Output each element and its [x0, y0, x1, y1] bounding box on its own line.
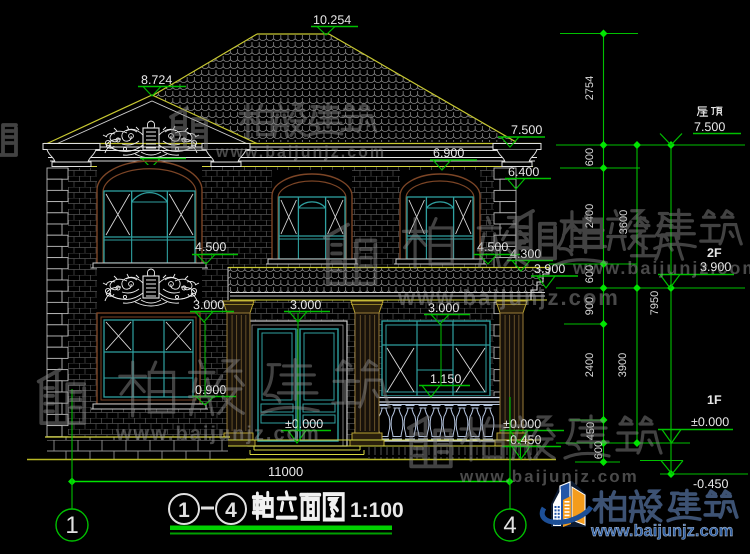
svg-text:7.500: 7.500	[511, 123, 542, 137]
svg-text:±0.000: ±0.000	[691, 415, 729, 429]
svg-text:2400: 2400	[584, 353, 596, 377]
svg-text:600: 600	[584, 148, 596, 166]
svg-text:8.724: 8.724	[141, 73, 172, 87]
svg-text:1:100: 1:100	[350, 499, 404, 522]
svg-text:10.254: 10.254	[313, 13, 351, 27]
svg-text:www.baijunjz.com: www.baijunjz.com	[115, 423, 321, 445]
svg-text:3900: 3900	[617, 353, 629, 377]
svg-text:1.150: 1.150	[430, 372, 461, 386]
svg-text:www.baijunjz.com: www.baijunjz.com	[572, 258, 750, 278]
svg-text:11000: 11000	[268, 464, 303, 479]
svg-text:3.000: 3.000	[290, 298, 321, 312]
svg-text:3.000: 3.000	[193, 298, 224, 312]
svg-text:1F: 1F	[707, 393, 722, 407]
svg-text:-0.450: -0.450	[693, 477, 728, 491]
svg-text:4: 4	[503, 512, 516, 539]
svg-text:www.baijunjz.com: www.baijunjz.com	[397, 285, 620, 310]
svg-text:7.500: 7.500	[694, 120, 725, 134]
svg-text:6.900: 6.900	[433, 146, 464, 160]
svg-text:3600: 3600	[618, 210, 630, 234]
svg-text:6.400: 6.400	[508, 165, 539, 179]
svg-text:www.baijunjz.com: www.baijunjz.com	[590, 522, 733, 540]
svg-text:1: 1	[178, 499, 190, 522]
svg-text:1: 1	[65, 512, 78, 539]
svg-text:www.baijunjz.com: www.baijunjz.com	[215, 144, 386, 161]
svg-text:4: 4	[225, 499, 237, 522]
svg-text:7950: 7950	[649, 291, 661, 315]
svg-text:2754: 2754	[584, 76, 596, 100]
svg-text:4.500: 4.500	[195, 240, 226, 254]
svg-text:www.baijunjz.com: www.baijunjz.com	[459, 467, 639, 486]
